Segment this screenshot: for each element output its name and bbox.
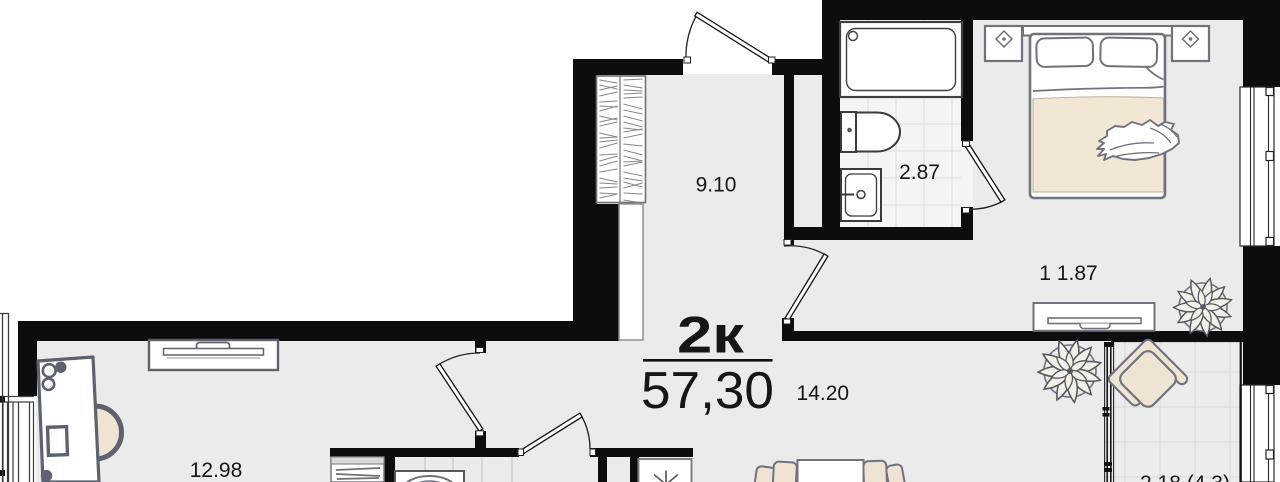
svg-text:2.18 (4.3): 2.18 (4.3) [1140, 472, 1230, 482]
svg-text:1 1.87: 1 1.87 [1039, 262, 1097, 285]
svg-text:14.20: 14.20 [797, 382, 850, 405]
svg-text:2к: 2к [677, 307, 745, 365]
svg-text:2.87: 2.87 [899, 161, 940, 184]
svg-text:9.10: 9.10 [696, 174, 737, 197]
svg-text:57,30: 57,30 [641, 362, 774, 420]
svg-text:12.98: 12.98 [190, 459, 243, 482]
